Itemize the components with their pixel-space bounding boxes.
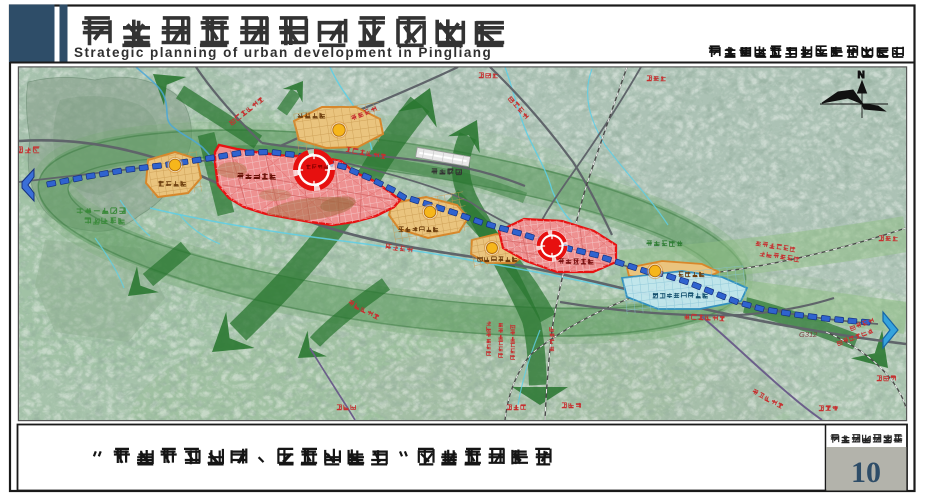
svg-text:Strategic planning of urban de: Strategic planning of urban development … [74,45,492,60]
svg-text:10: 10 [851,456,881,489]
svg-text:N: N [858,70,865,81]
svg-text:G312: G312 [799,330,818,339]
